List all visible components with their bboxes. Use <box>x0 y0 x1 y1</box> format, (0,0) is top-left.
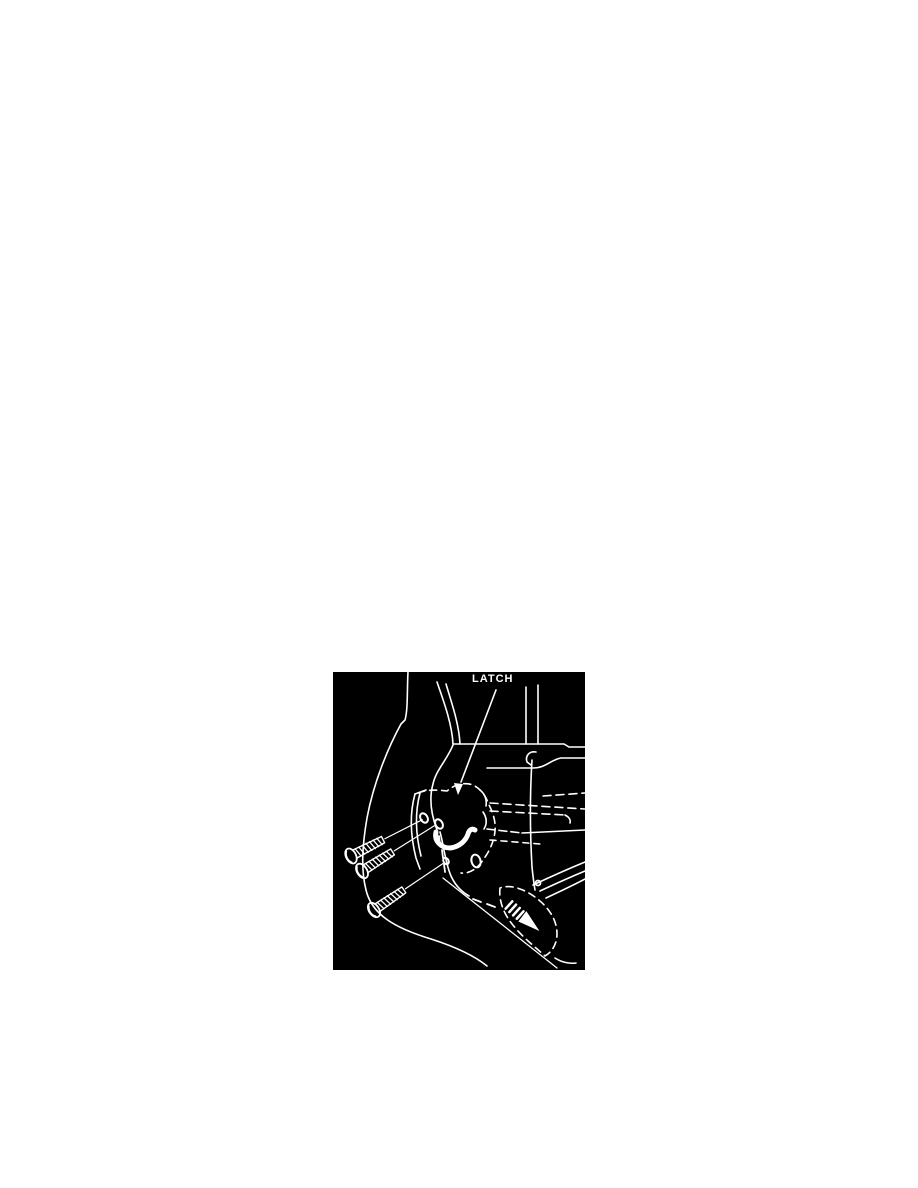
sill-arc-under-tip <box>555 958 576 963</box>
latch-body-stroke-2 <box>483 812 486 829</box>
rod-end-curve <box>565 815 570 823</box>
rod-solid-2 <box>522 830 585 833</box>
rod-dashes-2a <box>487 829 522 833</box>
lock-cylinder-oval <box>470 854 482 869</box>
screw-hole-2 <box>433 818 444 830</box>
rod-dashes-1b <box>490 811 565 815</box>
door-edge-line <box>531 760 536 890</box>
latch-plate-edge-2 <box>416 793 421 856</box>
latch-body-stroke-1 <box>480 790 486 806</box>
pillar-right-lower <box>431 745 453 830</box>
cable-line-2 <box>540 871 585 891</box>
latch-plate-edge-1 <box>411 794 420 869</box>
sill-line <box>487 758 585 768</box>
pillar-right-outer <box>437 682 453 744</box>
rod-dashes-1a <box>490 803 585 809</box>
latch-illustration: LATCH <box>333 672 585 970</box>
screw-2-axis-line <box>394 825 435 850</box>
pillar-left-line <box>363 672 487 966</box>
manual-page: LATCH <box>0 0 918 1188</box>
cable-line-3 <box>546 879 585 898</box>
latch-cable-dashes <box>473 899 495 907</box>
rod-dashes-top <box>543 793 585 796</box>
latch-diagram-drawing <box>333 672 585 970</box>
rod-dashes-2b <box>490 840 540 844</box>
belt-line <box>453 744 585 747</box>
latch-label: LATCH <box>472 672 513 686</box>
screw-hole-1 <box>418 812 429 824</box>
screw-3-axis-line <box>406 864 443 889</box>
